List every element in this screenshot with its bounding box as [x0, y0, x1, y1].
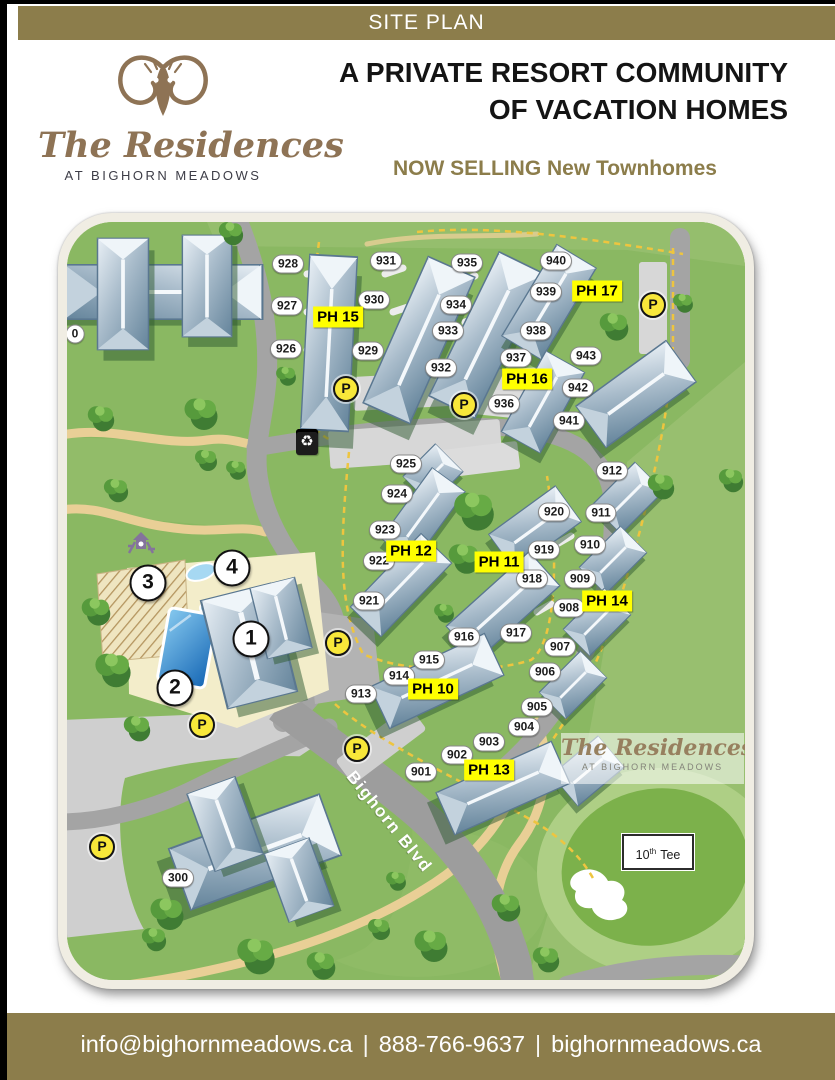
title-line-2: OF VACATION HOMES [278, 91, 788, 128]
unit-label-916: 916 [448, 628, 480, 647]
watermark-name: The Residences [561, 735, 744, 761]
brand-name: The Residences [38, 128, 288, 164]
amenity-marker-3: 3 [130, 565, 167, 602]
unit-label-923: 923 [369, 521, 401, 540]
unit-label-915: 915 [413, 651, 445, 670]
penthouse-label-ph-10: PH 10 [408, 679, 458, 700]
unit-label-935: 935 [451, 254, 483, 273]
unit-label-941: 941 [553, 412, 585, 431]
amenity-marker-2: 2 [157, 670, 194, 707]
unit-label-934: 934 [440, 296, 472, 315]
unit-label-939: 939 [530, 283, 562, 302]
playground-icon [126, 529, 156, 561]
parking-marker-4: P [325, 630, 351, 656]
unit-label-913: 913 [345, 685, 377, 704]
unit-label-937: 937 [500, 349, 532, 368]
street-label: Bighorn Blvd [342, 767, 436, 877]
tee-ordinal: th [650, 847, 657, 856]
unit-label-940: 940 [540, 252, 572, 271]
unit-label-908: 908 [553, 599, 585, 618]
unit-label-929: 929 [352, 342, 384, 361]
unit-label-912: 912 [596, 462, 628, 481]
unit-label-927: 927 [271, 297, 303, 316]
unit-label-938: 938 [520, 322, 552, 341]
parking-marker-1: P [333, 376, 359, 402]
penthouse-label-ph-17: PH 17 [572, 281, 622, 302]
site-map: Bighorn Blvd The Residences AT BIGHORN M… [67, 222, 745, 980]
penthouse-label-ph-11: PH 11 [475, 552, 524, 573]
penthouse-label-ph-15: PH 15 [313, 307, 363, 328]
unit-label-931: 931 [370, 252, 402, 271]
parking-marker-6: P [189, 712, 215, 738]
unit-label-932: 932 [425, 359, 457, 378]
amenity-marker-1: 1 [233, 621, 270, 658]
unit-label-901: 901 [405, 763, 437, 782]
tee-label: 10thTee [622, 834, 694, 870]
unit-label-906: 906 [529, 663, 561, 682]
unit-label-903: 903 [473, 733, 505, 752]
unit-label-0: 0 [67, 325, 84, 344]
unit-label-917: 917 [500, 624, 532, 643]
unit-label-925: 925 [390, 455, 422, 474]
unit-label-300: 300 [162, 869, 194, 888]
tee-number: 10 [636, 848, 650, 862]
unit-label-910: 910 [574, 536, 606, 555]
top-banner-label: SITE PLAN [368, 11, 484, 34]
penthouse-label-ph-12: PH 12 [386, 541, 436, 562]
map-overlay: Bighorn Blvd The Residences AT BIGHORN M… [67, 222, 745, 980]
page-edge-top [0, 0, 835, 4]
unit-label-921: 921 [353, 592, 385, 611]
brand-logo: The Residences AT BIGHORN MEADOWS [38, 50, 288, 183]
footer-bar: info@bighornmeadows.ca|888-766-9637|bigh… [7, 1013, 835, 1080]
now-selling-subtitle: NOW SELLING New Townhomes [330, 157, 780, 181]
page-title: A PRIVATE RESORT COMMUNITY OF VACATION H… [278, 54, 788, 128]
brand-tagline: AT BIGHORN MEADOWS [38, 168, 288, 183]
unit-label-905: 905 [521, 698, 553, 717]
footer-separator: | [363, 1031, 369, 1057]
unit-label-943: 943 [570, 347, 602, 366]
recycling-bin-icon: ♻ [296, 429, 318, 455]
unit-label-920: 920 [538, 503, 570, 522]
site-plan-page: SITE PLAN The Residences AT BIGHORN MEAD… [0, 0, 835, 1080]
unit-label-904: 904 [508, 718, 540, 737]
unit-label-919: 919 [528, 541, 560, 560]
site-map-frame: Bighorn Blvd The Residences AT BIGHORN M… [58, 213, 754, 989]
watermark-tagline: AT BIGHORN MEADOWS [561, 762, 744, 772]
map-watermark: The Residences AT BIGHORN MEADOWS [561, 733, 744, 784]
unit-label-926: 926 [270, 340, 302, 359]
unit-label-911: 911 [585, 504, 616, 523]
unit-label-936: 936 [488, 395, 520, 414]
top-banner: SITE PLAN [18, 6, 835, 40]
footer-email: info@bighornmeadows.ca [81, 1031, 353, 1057]
footer-separator: | [535, 1031, 541, 1057]
unit-label-909: 909 [564, 570, 596, 589]
parking-marker-5: P [344, 736, 370, 762]
amenity-marker-4: 4 [214, 550, 251, 587]
footer-website: bighornmeadows.ca [551, 1031, 761, 1057]
unit-label-933: 933 [432, 322, 464, 341]
page-edge-left [0, 0, 7, 1080]
footer-phone: 888-766-9637 [379, 1031, 525, 1057]
parking-marker-7: P [89, 834, 115, 860]
penthouse-label-ph-16: PH 16 [502, 369, 552, 390]
parking-marker-2: P [640, 292, 666, 318]
unit-label-928: 928 [272, 255, 304, 274]
unit-label-907: 907 [544, 638, 576, 657]
unit-label-942: 942 [562, 379, 594, 398]
penthouse-label-ph-14: PH 14 [582, 591, 632, 612]
ram-head-icon [111, 50, 215, 126]
tee-word: Tee [660, 848, 680, 862]
penthouse-label-ph-13: PH 13 [464, 760, 514, 781]
title-line-1: A PRIVATE RESORT COMMUNITY [278, 54, 788, 91]
parking-marker-3: P [451, 392, 477, 418]
unit-label-924: 924 [381, 485, 413, 504]
